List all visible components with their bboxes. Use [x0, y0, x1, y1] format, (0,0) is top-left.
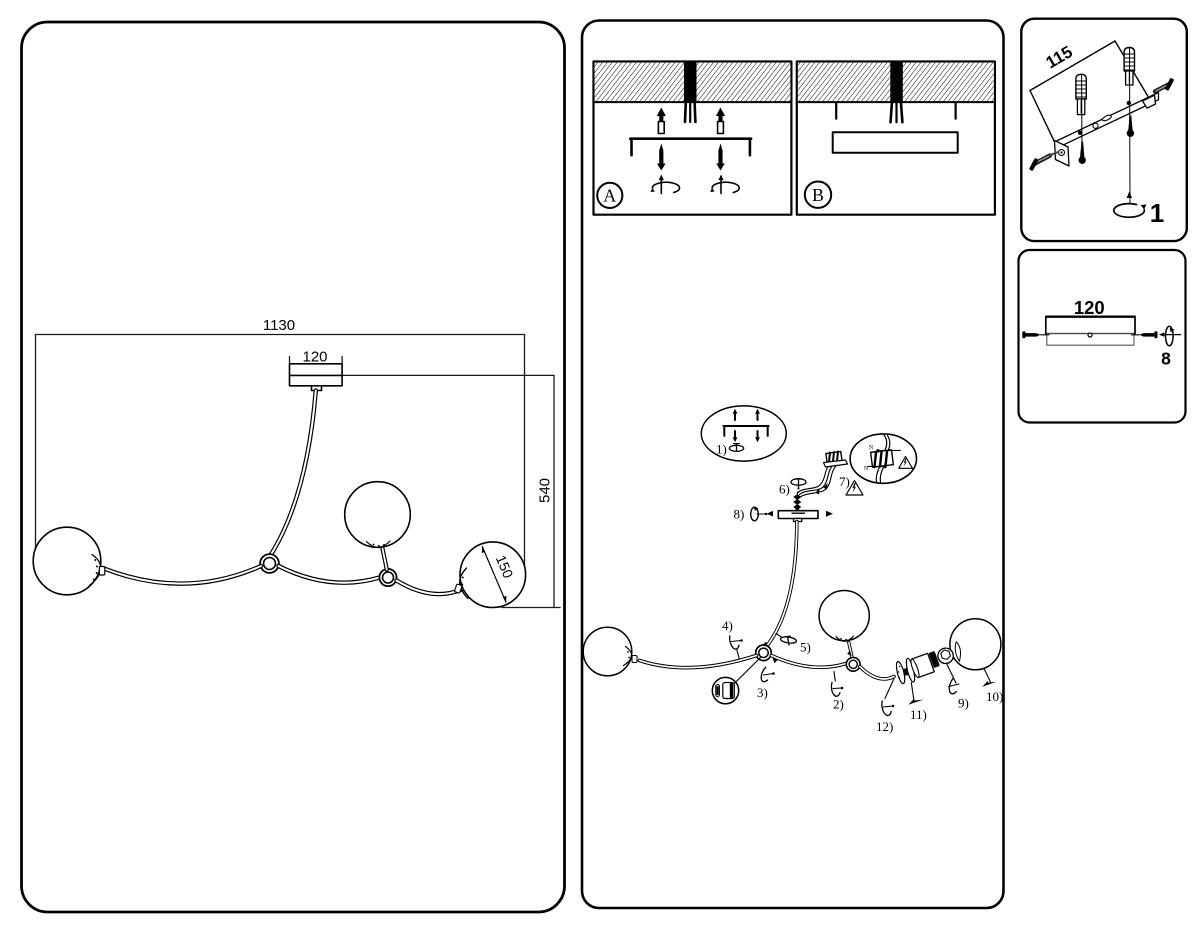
svg-text:A: A — [603, 186, 616, 206]
svg-text:B: B — [812, 185, 824, 205]
svg-text:115: 115 — [1043, 42, 1076, 72]
svg-text:540: 540 — [537, 478, 554, 503]
svg-text:11): 11) — [910, 707, 927, 722]
svg-text:8: 8 — [1161, 349, 1171, 369]
svg-text:120: 120 — [302, 349, 327, 366]
svg-text:N: N — [869, 445, 874, 451]
svg-text:6): 6) — [779, 482, 790, 497]
svg-text:120: 120 — [1074, 297, 1105, 318]
svg-text:4): 4) — [722, 618, 733, 633]
svg-text:10): 10) — [986, 689, 1003, 704]
svg-text:1): 1) — [716, 442, 727, 457]
svg-text:2): 2) — [833, 697, 844, 712]
svg-text:3): 3) — [757, 685, 768, 700]
svg-text:N: N — [864, 466, 869, 472]
svg-text:1: 1 — [1150, 198, 1164, 228]
svg-text:5): 5) — [800, 640, 811, 655]
svg-text:8): 8) — [734, 507, 745, 522]
svg-text:1130: 1130 — [263, 317, 295, 334]
svg-text:9): 9) — [958, 696, 969, 711]
svg-text:7): 7) — [839, 474, 850, 489]
svg-text:12): 12) — [876, 719, 893, 734]
